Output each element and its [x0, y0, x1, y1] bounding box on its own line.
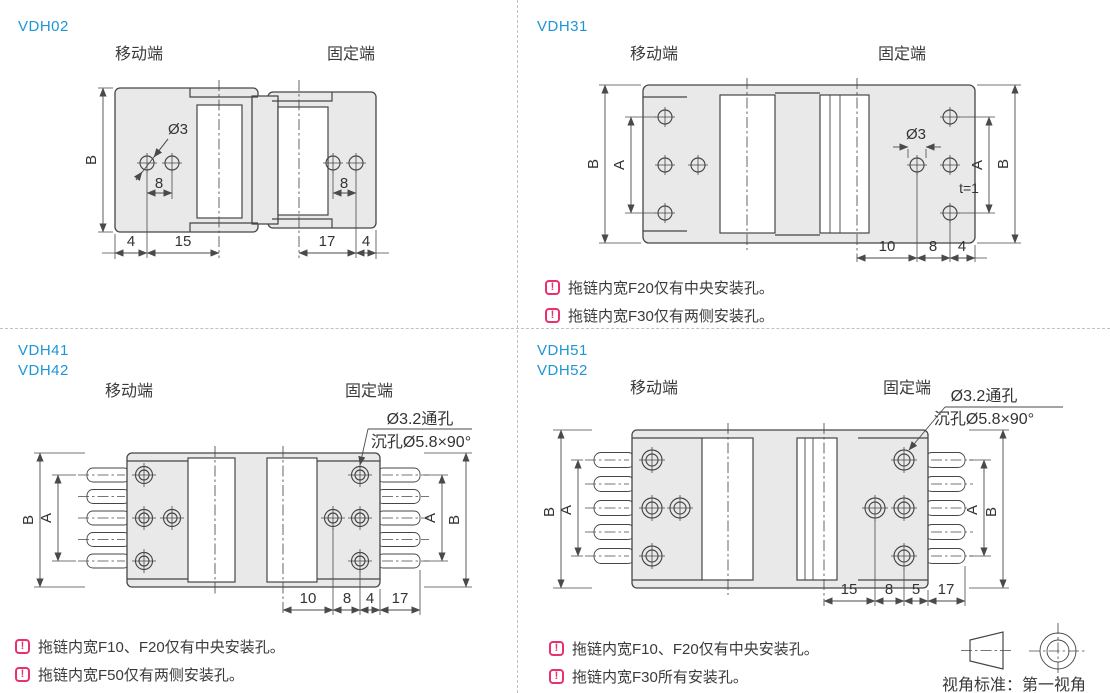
note-row: ! 拖链内宽F10、F20仅有中央安装孔。	[549, 638, 819, 659]
model-label-vdh31: VDH31	[537, 17, 588, 37]
note-text: 拖链内宽F30所有安装孔。	[572, 666, 748, 687]
technical-drawing-page: B Ø3 8 8 4 15 17 4	[0, 0, 1110, 693]
warning-icon: !	[545, 280, 560, 295]
dim-a-left-label: A	[611, 160, 628, 170]
callout-line1: Ø3.2通孔	[387, 410, 454, 428]
moving-end-label: 移动端	[115, 40, 163, 64]
dim-b-left-label: B	[541, 507, 558, 517]
dim-b1-label: 10	[300, 590, 317, 607]
vdh51-notes: ! 拖链内宽F10、F20仅有中央安装孔。 ! 拖链内宽F30所有安装孔。	[549, 638, 819, 693]
fixed-end-label: 固定端	[327, 40, 375, 64]
vdh41-teeth-left	[78, 468, 130, 568]
dim-a-left-label: A	[558, 505, 575, 515]
warning-icon: !	[15, 639, 30, 654]
model-line: VDH41	[18, 341, 69, 361]
vdh02-drawing: B Ø3 8 8 4 15 17 4	[0, 0, 517, 328]
panel-vdh51: Ø3.2通孔 沉孔Ø5.8×90° B A A B	[517, 328, 1110, 693]
vdh02-body	[115, 80, 376, 258]
dim-thickness-label: t=1	[959, 180, 979, 196]
projection-standard-caption: 视角标准：第一视角	[942, 671, 1086, 693]
note-row: ! 拖链内宽F10、F20仅有中央安装孔。	[15, 636, 285, 657]
moving-end-label: 移动端	[630, 374, 678, 398]
moving-end-label: 移动端	[105, 377, 153, 401]
dim-b-right-label: B	[995, 159, 1012, 169]
vdh41-notes: ! 拖链内宽F10、F20仅有中央安装孔。 ! 拖链内宽F50仅有两侧安装孔。	[15, 636, 285, 692]
dim-b-right-label: B	[446, 515, 463, 525]
warning-icon: !	[15, 667, 30, 682]
moving-end-label: 移动端	[630, 40, 678, 64]
model-line: VDH51	[537, 341, 588, 361]
model-label-vdh51: VDH51 VDH52	[537, 341, 588, 381]
callout-line2: 沉孔Ø5.8×90°	[934, 410, 1034, 428]
warning-icon: !	[549, 641, 564, 656]
dim-b1-label: 10	[879, 238, 896, 255]
dim-b-label: B	[83, 155, 100, 165]
vdh51-body	[632, 423, 928, 606]
note-row: ! 拖链内宽F50仅有两侧安装孔。	[15, 664, 285, 685]
dim-b2-label: 15	[175, 233, 192, 250]
warning-icon: !	[545, 308, 560, 323]
dim-a-right-label: A	[422, 513, 439, 523]
vertical-divider	[517, 0, 518, 693]
vdh31-body	[643, 78, 975, 262]
warning-icon: !	[549, 669, 564, 684]
note-row: ! 拖链内宽F20仅有中央安装孔。	[545, 277, 774, 298]
dim-b2-label: 8	[343, 590, 351, 607]
vdh31-notes: ! 拖链内宽F20仅有中央安装孔。 ! 拖链内宽F30仅有两侧安装孔。	[545, 277, 774, 333]
note-row: ! 拖链内宽F30所有安装孔。	[549, 666, 819, 687]
note-row: ! 拖链内宽F30仅有两侧安装孔。	[545, 305, 774, 326]
dim-b1-label: 15	[841, 581, 858, 598]
dim-b-left-label: B	[20, 515, 37, 525]
panel-vdh02: B Ø3 8 8 4 15 17 4	[0, 0, 517, 328]
dim-pitch-left-label: 8	[155, 175, 163, 192]
dim-b4-label: 17	[392, 590, 409, 607]
note-text: 拖链内宽F50仅有两侧安装孔。	[38, 664, 244, 685]
fixed-end-label: 固定端	[878, 40, 926, 64]
dim-b3-label: 5	[912, 581, 920, 598]
note-text: 拖链内宽F10、F20仅有中央安装孔。	[38, 636, 285, 657]
dim-b4-label: 4	[362, 233, 370, 250]
vdh51-callout: Ø3.2通孔 沉孔Ø5.8×90°	[909, 387, 1063, 450]
model-label-vdh02: VDH02	[18, 17, 69, 37]
dim-a-left-label: A	[38, 513, 55, 523]
dim-b1-label: 4	[127, 233, 135, 250]
dim-pitch-right-label: 8	[340, 175, 348, 192]
vdh51-teeth-left	[585, 453, 635, 564]
note-text: 拖链内宽F30仅有两侧安装孔。	[568, 305, 774, 326]
callout-line1: Ø3.2通孔	[951, 387, 1018, 405]
dim-b3-label: 4	[366, 590, 374, 607]
dim-hole-label: Ø3	[168, 121, 188, 138]
panel-vdh41: Ø3.2通孔 沉孔Ø5.8×90° B A A B	[0, 328, 517, 693]
model-label-vdh41: VDH41 VDH42	[18, 341, 69, 381]
dim-b4-label: 17	[938, 581, 955, 598]
dim-b-right-label: B	[983, 507, 1000, 517]
model-line: VDH42	[18, 361, 69, 381]
note-text: 拖链内宽F10、F20仅有中央安装孔。	[572, 638, 819, 659]
fixed-end-label: 固定端	[345, 377, 393, 401]
horizontal-divider	[0, 328, 1110, 329]
callout-line2: 沉孔Ø5.8×90°	[371, 433, 471, 451]
dim-b2-label: 8	[929, 238, 937, 255]
dim-a-right-label: A	[969, 160, 986, 170]
fixed-end-label: 固定端	[883, 374, 931, 398]
note-text: 拖链内宽F20仅有中央安装孔。	[568, 277, 774, 298]
dim-a-right-label: A	[964, 505, 981, 515]
model-line: VDH52	[537, 361, 588, 381]
dim-b3-label: 4	[958, 238, 966, 255]
dim-b-left-label: B	[585, 159, 602, 169]
dim-b3-label: 17	[319, 233, 336, 250]
dim-b2-label: 8	[885, 581, 893, 598]
panel-vdh31: B A Ø3 t=1 A B 10 8	[517, 0, 1110, 328]
dim-hole-label: Ø3	[906, 126, 926, 143]
